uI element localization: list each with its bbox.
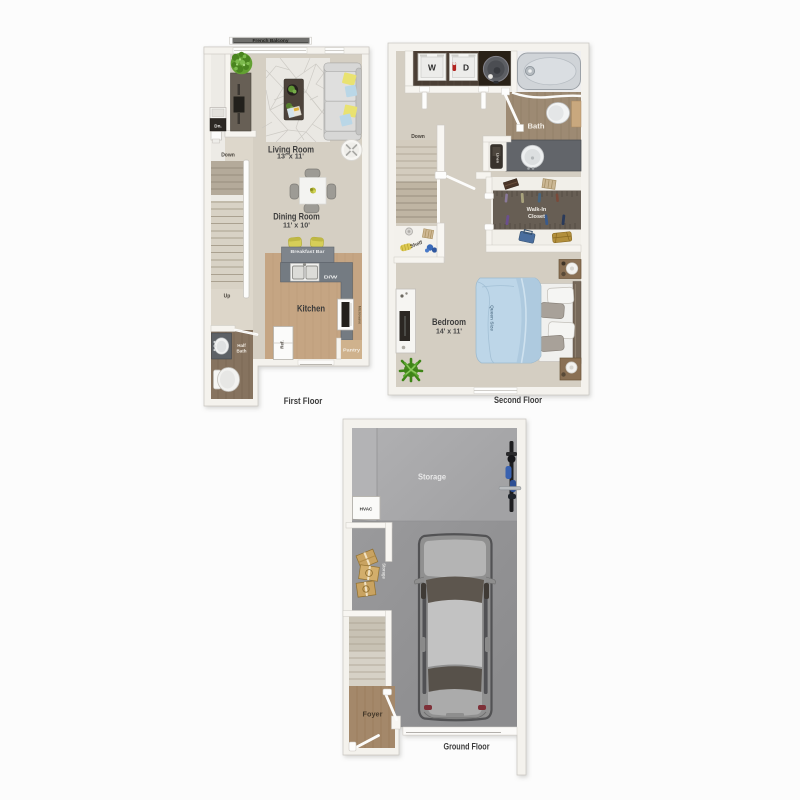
svg-text:HVAC: HVAC [360,507,373,512]
svg-text:13' x 11': 13' x 11' [277,152,304,161]
svg-text:Down: Down [221,153,235,159]
svg-text:Foyer: Foyer [363,712,383,719]
svg-text:Ref.: Ref. [280,340,285,349]
svg-text:Queen Size: Queen Size [489,305,495,331]
svg-text:First Floor: First Floor [284,396,323,406]
svg-text:Ground Floor: Ground Floor [444,742,490,752]
svg-text:Breakfast Bar: Breakfast Bar [291,249,325,255]
svg-text:Microwave: Microwave [358,306,362,324]
svg-text:Bath: Bath [237,348,247,353]
svg-text:D: D [463,63,469,73]
svg-text:Dn.: Dn. [214,123,221,128]
svg-text:14' x 11': 14' x 11' [436,327,462,336]
svg-text:Storage: Storage [418,472,446,481]
svg-text:Bedroom: Bedroom [432,317,466,327]
svg-text:Storage: Storage [382,563,387,579]
svg-text:Closet: Closet [528,214,545,220]
svg-text:Bath: Bath [528,121,545,130]
svg-text:Up: Up [224,294,231,300]
svg-text:W: W [428,63,436,73]
svg-text:Down: Down [411,134,425,140]
svg-text:Walk-In: Walk-In [527,207,547,213]
svg-text:Half: Half [237,343,246,348]
svg-text:Kitchen: Kitchen [297,304,325,314]
svg-text:Second Floor: Second Floor [494,395,542,405]
svg-text:11' x 10': 11' x 10' [283,221,310,230]
svg-text:Linen: Linen [496,153,500,164]
svg-text:Pantry: Pantry [343,347,361,352]
svg-text:D/W: D/W [324,274,338,280]
svg-text:French Balcony: French Balcony [253,38,290,43]
